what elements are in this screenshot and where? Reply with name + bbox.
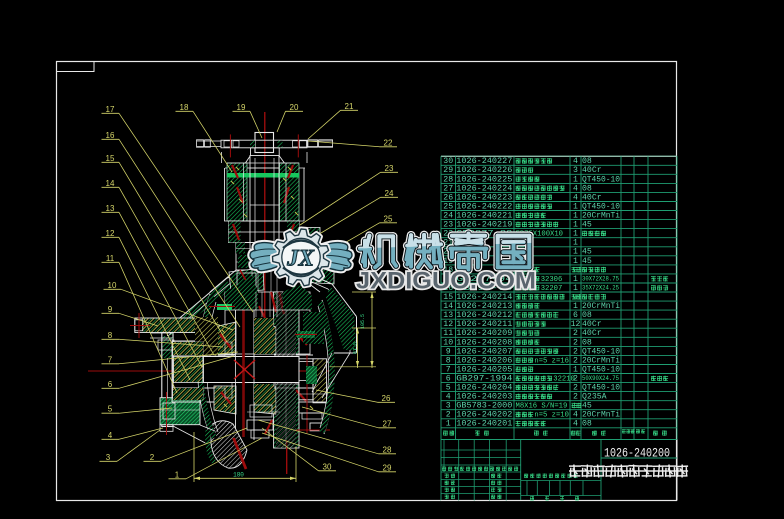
svg-text:4: 4: [573, 184, 578, 193]
svg-text:12: 12: [106, 229, 115, 238]
svg-text:15: 15: [106, 154, 115, 163]
svg-text:25: 25: [443, 202, 453, 211]
svg-text:30: 30: [323, 462, 332, 471]
svg-text:08: 08: [582, 184, 592, 193]
svg-text:6: 6: [108, 380, 113, 389]
svg-text:105.5: 105.5: [360, 314, 366, 329]
svg-text:12: 12: [443, 320, 453, 329]
svg-text:20: 20: [290, 103, 299, 112]
svg-text:20CrMnTi: 20CrMnTi: [582, 410, 620, 420]
svg-text:JXDIGUO.COM: JXDIGUO.COM: [356, 268, 536, 295]
svg-text:1: 1: [573, 365, 578, 374]
svg-text:20CrMnTi: 20CrMnTi: [582, 211, 620, 221]
svg-text:1: 1: [573, 239, 578, 248]
svg-text:3: 3: [446, 402, 451, 411]
svg-text:28: 28: [443, 175, 453, 184]
svg-text:26: 26: [443, 193, 453, 202]
svg-text:6: 6: [573, 311, 578, 320]
svg-text:QT450-10: QT450-10: [582, 347, 620, 356]
svg-text:Q235A: Q235A: [582, 393, 607, 402]
svg-text:2: 2: [573, 375, 578, 384]
svg-text:2: 2: [573, 338, 578, 347]
svg-text:20CrMnTi: 20CrMnTi: [582, 355, 620, 365]
svg-text:7: 7: [108, 355, 113, 364]
svg-text:50X90X24.75: 50X90X24.75: [582, 375, 619, 382]
svg-text:19: 19: [237, 103, 246, 112]
svg-text:14: 14: [106, 179, 115, 188]
svg-text:QT450-10: QT450-10: [582, 365, 620, 374]
svg-text:18: 18: [180, 103, 189, 112]
svg-text:45: 45: [582, 248, 592, 257]
svg-text:1: 1: [573, 275, 578, 284]
svg-text:12: 12: [571, 320, 581, 329]
svg-text:25: 25: [384, 214, 393, 223]
svg-text:08: 08: [582, 311, 592, 320]
svg-text:13: 13: [443, 311, 453, 320]
svg-text:40Cr: 40Cr: [582, 320, 602, 329]
svg-text:9: 9: [108, 305, 113, 314]
svg-text:1: 1: [573, 302, 578, 311]
svg-text:9: 9: [446, 347, 451, 356]
svg-text:11: 11: [106, 254, 115, 263]
svg-text:QT450-10: QT450-10: [582, 384, 620, 393]
svg-text:23: 23: [385, 164, 394, 173]
svg-text:24: 24: [443, 212, 453, 221]
svg-text:1: 1: [573, 257, 578, 266]
svg-text:4: 4: [573, 420, 578, 429]
svg-text:1: 1: [446, 420, 451, 429]
svg-text:23: 23: [443, 221, 453, 230]
svg-text:17: 17: [106, 105, 115, 114]
svg-text:16: 16: [106, 131, 115, 140]
svg-text:1: 1: [573, 248, 578, 257]
svg-text:1026-240200: 1026-240200: [604, 447, 670, 461]
svg-text:14: 14: [443, 302, 453, 311]
svg-text:1: 1: [573, 221, 578, 230]
svg-text:4: 4: [446, 393, 451, 402]
svg-text:QT450-10: QT450-10: [582, 202, 620, 211]
svg-text:180: 180: [233, 472, 244, 479]
svg-text:24: 24: [385, 189, 394, 198]
svg-text:40Cr: 40Cr: [582, 329, 602, 338]
svg-text:32210: 32210: [553, 376, 575, 384]
svg-text:40Cr: 40Cr: [582, 193, 602, 202]
svg-text:1: 1: [573, 212, 578, 221]
svg-text:1026-240201: 1026-240201: [456, 419, 512, 429]
svg-text:3: 3: [573, 166, 578, 175]
svg-text:30X72X28.75: 30X72X28.75: [582, 275, 619, 282]
svg-text:4: 4: [573, 411, 578, 420]
svg-text:7: 7: [446, 365, 451, 374]
svg-text:5: 5: [446, 384, 451, 393]
svg-text:27: 27: [443, 184, 453, 193]
svg-text:QT450-10: QT450-10: [582, 175, 620, 184]
svg-text:1: 1: [573, 230, 578, 239]
svg-text:2: 2: [573, 356, 578, 365]
svg-text:45: 45: [582, 221, 592, 230]
svg-text:57.5: 57.5: [353, 342, 359, 354]
svg-text:45: 45: [582, 402, 592, 411]
svg-text:45: 45: [582, 257, 592, 266]
svg-text:JX: JX: [286, 246, 315, 271]
svg-text:1: 1: [175, 470, 180, 479]
svg-text:30: 30: [443, 157, 453, 166]
svg-text:28: 28: [383, 445, 392, 454]
svg-text:2: 2: [573, 384, 578, 393]
svg-text:26: 26: [382, 394, 391, 403]
svg-text:29: 29: [383, 463, 392, 472]
svg-text:4: 4: [573, 157, 578, 166]
svg-text:3: 3: [106, 453, 111, 462]
svg-text:1: 1: [573, 202, 578, 211]
svg-text:2: 2: [573, 329, 578, 338]
svg-text:08: 08: [582, 420, 592, 429]
svg-text:1: 1: [573, 175, 578, 184]
svg-text:n=5 z=16: n=5 z=16: [534, 357, 569, 365]
svg-text:6: 6: [446, 375, 451, 384]
svg-text:10: 10: [443, 338, 453, 347]
svg-text:40Cr: 40Cr: [582, 166, 602, 175]
svg-text:35X72X24.25: 35X72X24.25: [582, 284, 619, 291]
svg-text:21: 21: [345, 102, 354, 111]
svg-text:10: 10: [108, 281, 117, 290]
svg-text:2: 2: [446, 411, 451, 420]
svg-text:08: 08: [582, 338, 592, 347]
svg-text:08: 08: [582, 157, 592, 166]
svg-text:8: 8: [108, 331, 113, 340]
svg-text:2: 2: [573, 347, 578, 356]
svg-text:n=5 z=10: n=5 z=10: [534, 412, 569, 420]
svg-text:27: 27: [383, 419, 392, 428]
svg-text:11: 11: [443, 329, 453, 338]
svg-text:5: 5: [108, 405, 113, 414]
svg-text:22: 22: [384, 138, 393, 147]
svg-text:8: 8: [446, 356, 451, 365]
svg-text:32306: 32306: [541, 276, 563, 284]
svg-text:32207: 32207: [541, 285, 563, 293]
svg-text:2: 2: [573, 393, 578, 402]
svg-text:4: 4: [108, 431, 113, 440]
svg-text:13: 13: [106, 204, 115, 213]
svg-text:4: 4: [573, 193, 578, 202]
svg-text:29: 29: [443, 166, 453, 175]
svg-text:2: 2: [150, 453, 155, 462]
svg-text:M8X16 S/N=19: M8X16 S/N=19: [516, 403, 568, 411]
svg-text:20CrMnTi: 20CrMnTi: [582, 301, 620, 311]
svg-text:1: 1: [573, 284, 578, 293]
